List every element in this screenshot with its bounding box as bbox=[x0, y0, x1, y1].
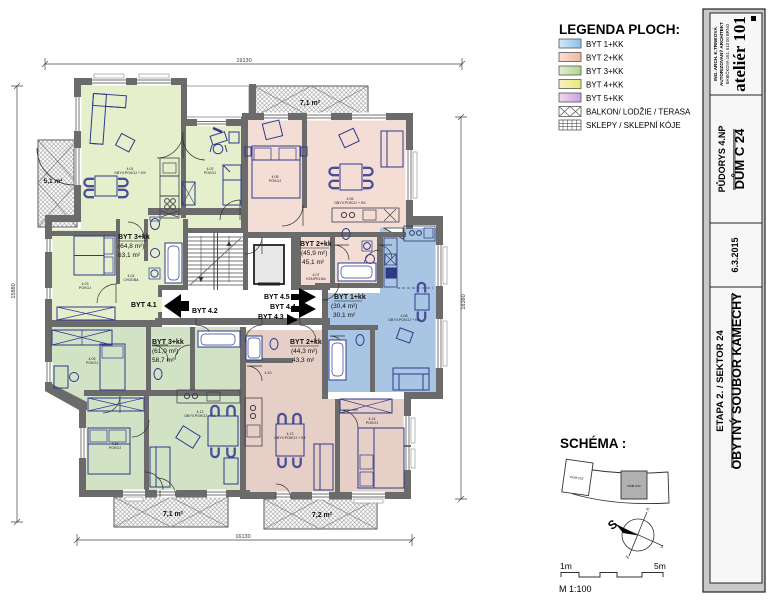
svg-text:KOUPELNA: KOUPELNA bbox=[306, 277, 326, 281]
svg-text:ING. ARCH. K.TRNKOVÁ: ING. ARCH. K.TRNKOVÁ bbox=[712, 26, 718, 80]
svg-text:BYT 3+KK: BYT 3+KK bbox=[586, 67, 624, 76]
svg-text:BYT 4+KK: BYT 4+KK bbox=[586, 81, 624, 90]
svg-text:(61,0 m²): (61,0 m²) bbox=[152, 348, 178, 355]
svg-text:BYT 5+KK: BYT 5+KK bbox=[586, 94, 624, 103]
svg-text:CHODBA: CHODBA bbox=[123, 278, 139, 282]
svg-text:19130: 19130 bbox=[236, 58, 251, 64]
svg-text:DŮM C 24: DŮM C 24 bbox=[731, 128, 747, 189]
svg-text:OBYV.POKOJ + KK: OBYV.POKOJ + KK bbox=[114, 171, 146, 175]
svg-text:1m: 1m bbox=[560, 561, 572, 571]
svg-text:BYT 3+kk: BYT 3+kk bbox=[118, 234, 150, 241]
svg-text:15880: 15880 bbox=[11, 283, 17, 298]
svg-text:Z: Z bbox=[624, 555, 630, 560]
svg-text:BYT 4.4: BYT 4.4 bbox=[270, 304, 296, 311]
svg-text:(45,9 m²): (45,9 m²) bbox=[301, 250, 327, 257]
svg-text:(30,4 m²): (30,4 m²) bbox=[331, 303, 357, 310]
svg-text:16130: 16130 bbox=[235, 534, 250, 540]
svg-text:BYT 4.1: BYT 4.1 bbox=[131, 302, 157, 309]
svg-text:58,7 m²: 58,7 m² bbox=[152, 357, 175, 364]
svg-text:ateliér 101: ateliér 101 bbox=[730, 16, 749, 92]
svg-text:POKOJ: POKOJ bbox=[86, 361, 98, 365]
svg-text:BYT 2+kk: BYT 2+kk bbox=[290, 339, 322, 346]
svg-text:OBYTNÝ SOUBOR KAMECHY: OBYTNÝ SOUBOR KAMECHY bbox=[729, 292, 744, 470]
svg-text:7,2 m²: 7,2 m² bbox=[312, 512, 333, 519]
svg-text:BYT 1+KK: BYT 1+KK bbox=[586, 40, 624, 49]
svg-text:45,1 m²: 45,1 m² bbox=[302, 259, 325, 266]
svg-text:18380: 18380 bbox=[461, 294, 467, 309]
svg-text:BYT 4.5: BYT 4.5 bbox=[264, 294, 290, 301]
svg-text:BALKON/ LODŽIE / TERASA: BALKON/ LODŽIE / TERASA bbox=[586, 108, 691, 117]
svg-text:OBYV.POKOJ + KK: OBYV.POKOJ + KK bbox=[334, 201, 366, 205]
svg-text:PŮDORYS 4.NP: PŮDORYS 4.NP bbox=[716, 126, 727, 193]
svg-text:SCHÉMA :: SCHÉMA : bbox=[560, 436, 626, 451]
svg-text:V: V bbox=[645, 507, 651, 512]
svg-text:7,1 m²: 7,1 m² bbox=[300, 100, 321, 107]
svg-text:BYT 4.3: BYT 4.3 bbox=[258, 314, 284, 321]
svg-text:6.3.2015: 6.3.2015 bbox=[730, 237, 740, 272]
svg-text:SKLEPY / SKLEPNÍ KÓJE: SKLEPY / SKLEPNÍ KÓJE bbox=[586, 121, 681, 130]
svg-text:BABIČKOVA 161, 613 00 BRNO: BABIČKOVA 161, 613 00 BRNO bbox=[725, 23, 730, 84]
svg-text:BYT 3+kk: BYT 3+kk bbox=[152, 339, 184, 346]
svg-text:4.10: 4.10 bbox=[265, 371, 272, 375]
svg-text:BYT 2+KK: BYT 2+KK bbox=[586, 54, 624, 63]
svg-text:M 1:100: M 1:100 bbox=[559, 584, 592, 594]
svg-text:OBYV.POKOJ + KK: OBYV.POKOJ + KK bbox=[388, 318, 420, 322]
svg-text:BYT 1+kk: BYT 1+kk bbox=[334, 294, 366, 301]
svg-text:OBYV.POKOJ + KK: OBYV.POKOJ + KK bbox=[274, 436, 306, 440]
svg-text:DŮM C24: DŮM C24 bbox=[627, 483, 641, 488]
svg-text:63,1 m²: 63,1 m² bbox=[118, 252, 141, 259]
svg-text:POKOJ: POKOJ bbox=[79, 286, 91, 290]
svg-text:BYT 2+kk: BYT 2+kk bbox=[300, 241, 332, 248]
svg-text:POKOJ: POKOJ bbox=[269, 179, 281, 183]
svg-text:OBYV.POKOJ + KK: OBYV.POKOJ + KK bbox=[184, 414, 216, 418]
svg-text:5m: 5m bbox=[654, 561, 666, 571]
svg-text:(44,3 m²): (44,3 m²) bbox=[291, 348, 317, 355]
svg-text:BYT 4.2: BYT 4.2 bbox=[192, 308, 218, 315]
svg-text:POKOJ: POKOJ bbox=[366, 421, 378, 425]
svg-text:7,1 m²: 7,1 m² bbox=[163, 511, 184, 518]
svg-text:POKOJ: POKOJ bbox=[109, 446, 121, 450]
svg-text:ETAPA 2. / SEKTOR 24: ETAPA 2. / SEKTOR 24 bbox=[715, 330, 726, 432]
svg-text:POKOJ: POKOJ bbox=[204, 171, 216, 175]
svg-text:43,3 m²: 43,3 m² bbox=[292, 357, 315, 364]
svg-text:AUTORIZOVANÝ ARCHITEKT: AUTORIZOVANÝ ARCHITEKT bbox=[718, 22, 724, 86]
svg-text:S: S bbox=[605, 517, 620, 533]
svg-text:LEGENDA PLOCH:: LEGENDA PLOCH: bbox=[559, 22, 680, 37]
svg-text:(64,8 m²): (64,8 m²) bbox=[118, 243, 144, 250]
svg-text:30,1 m²: 30,1 m² bbox=[333, 312, 356, 319]
